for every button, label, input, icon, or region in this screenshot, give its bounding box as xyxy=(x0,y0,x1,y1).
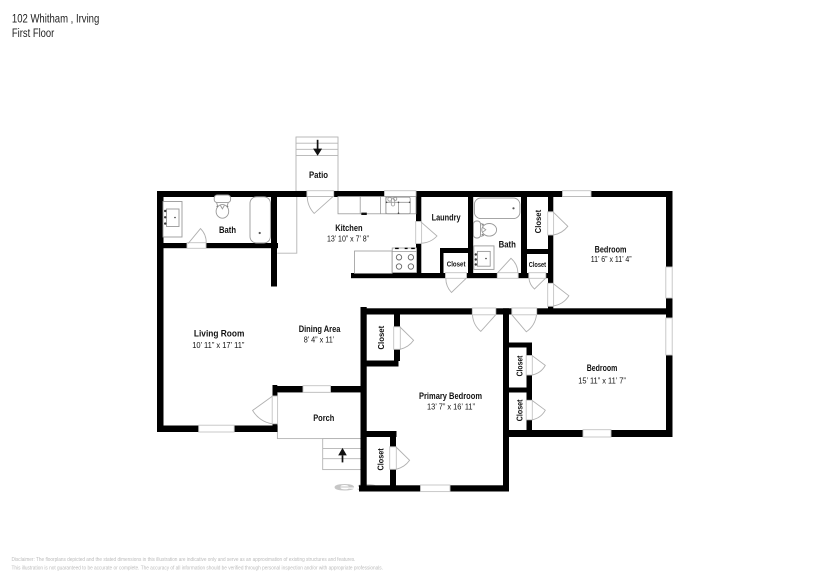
svg-text:13’ 7” x 16’ 11”: 13’ 7” x 16’ 11” xyxy=(427,402,475,412)
svg-text:Kitchen: Kitchen xyxy=(335,223,363,233)
svg-text:Closet: Closet xyxy=(533,210,543,234)
svg-text:Porch: Porch xyxy=(313,413,334,423)
svg-text:10’ 11” x 17’ 11”: 10’ 11” x 17’ 11” xyxy=(192,340,244,350)
svg-text:First Floor: First Floor xyxy=(12,26,54,40)
svg-text:Closet: Closet xyxy=(447,260,466,269)
svg-text:Living Room: Living Room xyxy=(194,329,245,340)
svg-text:Closet: Closet xyxy=(529,260,547,269)
svg-text:102 Whitham , Irving: 102 Whitham , Irving xyxy=(12,12,100,26)
svg-text:Primary Bedroom: Primary Bedroom xyxy=(419,391,482,402)
svg-text:Closet: Closet xyxy=(515,355,524,376)
svg-text:Bath: Bath xyxy=(219,225,236,235)
svg-text:Disclaimer: The floorplans dep: Disclaimer: The floorplans depicted and … xyxy=(12,557,356,563)
svg-text:Bedroom: Bedroom xyxy=(587,363,618,374)
svg-text:13’ 10” x 7’ 8”: 13’ 10” x 7’ 8” xyxy=(327,233,369,243)
svg-text:8’ 4” x 11’: 8’ 4” x 11’ xyxy=(304,335,335,345)
svg-text:Closet: Closet xyxy=(515,399,524,421)
svg-text:15’ 11” x 11’ 7”: 15’ 11” x 11’ 7” xyxy=(578,375,626,385)
svg-text:This illustration is not guara: This illustration is not guaranteed to b… xyxy=(12,566,384,572)
svg-text:Dining Area: Dining Area xyxy=(299,324,341,335)
svg-text:11’ 6” x 11’ 4”: 11’ 6” x 11’ 4” xyxy=(591,254,632,264)
svg-text:Closet: Closet xyxy=(376,326,386,350)
svg-text:Bath: Bath xyxy=(499,240,517,250)
svg-text:Patio: Patio xyxy=(309,170,329,180)
svg-text:Closet: Closet xyxy=(376,448,386,470)
svg-text:Laundry: Laundry xyxy=(432,212,462,222)
